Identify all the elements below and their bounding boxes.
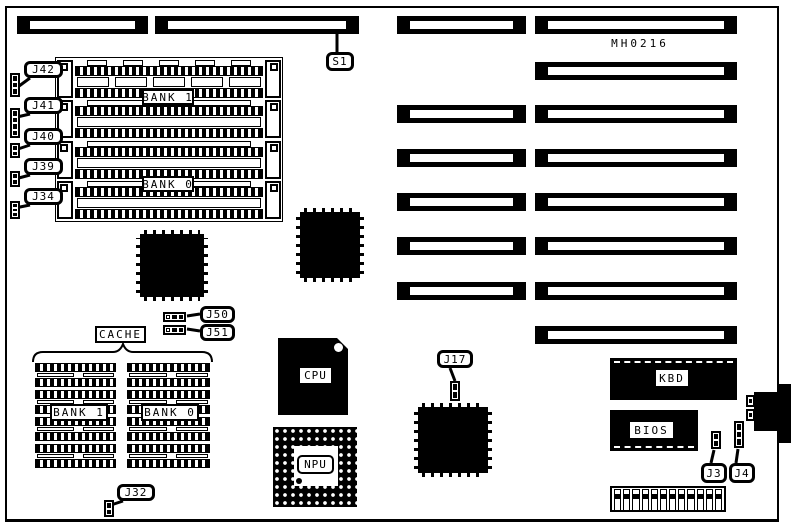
- callout-j39: J39: [24, 158, 63, 175]
- j50-callout-tail: [187, 314, 200, 316]
- callout-j42: J42: [24, 61, 63, 78]
- jumper-pin: [13, 213, 17, 216]
- callout-j32-label: J32: [125, 486, 148, 499]
- jumper-j17: [450, 381, 460, 401]
- jumper-pin: [107, 503, 111, 508]
- callout-j3: J3: [701, 463, 727, 483]
- callout-j41: J41: [24, 97, 63, 114]
- callout-j40: J40: [24, 128, 63, 145]
- memory-bank0-label: BANK 0: [142, 176, 194, 192]
- jumper-pin: [13, 89, 17, 94]
- jumper-pin: [13, 124, 17, 129]
- jumper-pin: [107, 510, 111, 515]
- jumper-pin: [179, 328, 183, 332]
- jumper-j40: [10, 143, 20, 158]
- jumper-pin: [13, 152, 17, 156]
- jumper-pin: [453, 392, 457, 398]
- jumper-pin: [13, 111, 17, 116]
- cache-bank0-label: BANK 0: [141, 404, 199, 421]
- callout-j4-label: J4: [734, 467, 749, 480]
- npu-text: NPU: [304, 458, 327, 471]
- jumper-pin: [166, 328, 170, 332]
- jumper-pin: [13, 174, 17, 178]
- jumper-pin: [166, 315, 170, 319]
- jumper-pin: [714, 434, 718, 439]
- jumper-pin: [13, 76, 17, 81]
- jumper-pin: [13, 204, 17, 207]
- j4-callout-tail: [736, 449, 738, 463]
- jumper-pin: [13, 146, 17, 150]
- callout-j40-label: J40: [32, 130, 55, 143]
- callout-s1-label: S1: [332, 55, 347, 68]
- jumper-j42: [10, 73, 20, 97]
- callout-j41-label: J41: [32, 99, 55, 112]
- callout-j39-label: J39: [32, 160, 55, 173]
- jumper-j41: [10, 108, 20, 138]
- jumper-j32: [104, 500, 114, 517]
- jumper-pin: [13, 209, 17, 212]
- jumper-j4: [734, 421, 744, 448]
- callout-j17: J17: [437, 350, 473, 368]
- callout-j34-label: J34: [32, 190, 55, 203]
- bios-label: BIOS: [629, 421, 674, 439]
- j51-callout-tail: [187, 329, 200, 331]
- jumper-j39: [10, 171, 20, 187]
- callout-j42-label: J42: [32, 63, 55, 76]
- jumper-pin: [172, 315, 176, 319]
- jumper-pin: [737, 424, 741, 430]
- callout-j3-label: J3: [706, 467, 721, 480]
- jumper-j51: [163, 325, 186, 335]
- cache-bank0-text: BANK 0: [144, 406, 196, 419]
- memory-bank1-label: BANK 1: [142, 89, 194, 105]
- callout-j50: J50: [200, 306, 235, 323]
- jumper-pin: [13, 83, 17, 88]
- cpu-label: CPU: [299, 367, 332, 384]
- memory-bank0-text: BANK 0: [142, 178, 194, 191]
- jumper-j3: [711, 431, 721, 449]
- callout-s1: S1: [326, 52, 354, 71]
- cache-bank1-label: BANK 1: [50, 404, 108, 421]
- jumper-pin: [13, 180, 17, 184]
- kbd-label: KBD: [655, 369, 689, 387]
- jumper-pin: [179, 315, 183, 319]
- bios-text: BIOS: [634, 424, 669, 437]
- jumper-j50: [163, 312, 186, 322]
- jumper-pin: [13, 118, 17, 123]
- jumper-pin: [737, 432, 741, 438]
- cache-bank1-text: BANK 1: [53, 406, 105, 419]
- callout-j34: J34: [24, 188, 63, 205]
- jumper-j34: [10, 201, 20, 219]
- memory-bank1-text: BANK 1: [142, 91, 194, 104]
- jumper-pin: [737, 439, 741, 445]
- j3-callout-tail: [711, 450, 714, 463]
- callout-j32: J32: [117, 484, 155, 501]
- callout-j50-label: J50: [206, 308, 229, 321]
- callout-j4: J4: [729, 463, 755, 483]
- motherboard-diagram: MH0216 S1 J42 J41 J40 J39 J34: [0, 0, 791, 527]
- callout-j17-label: J17: [444, 353, 467, 366]
- jumper-pin: [172, 328, 176, 332]
- callout-tails-overlay: [0, 0, 791, 527]
- kbd-text: KBD: [659, 372, 685, 385]
- jumper-pin: [13, 131, 17, 136]
- jumper-pin: [453, 384, 457, 390]
- cache-brace: [33, 344, 212, 362]
- callout-j51-label: J51: [206, 326, 229, 339]
- callout-j51: J51: [200, 324, 235, 341]
- jumper-pin: [714, 441, 718, 446]
- cpu-text: CPU: [304, 369, 327, 382]
- npu-label: NPU: [297, 455, 334, 474]
- j17-callout-tail: [450, 368, 455, 381]
